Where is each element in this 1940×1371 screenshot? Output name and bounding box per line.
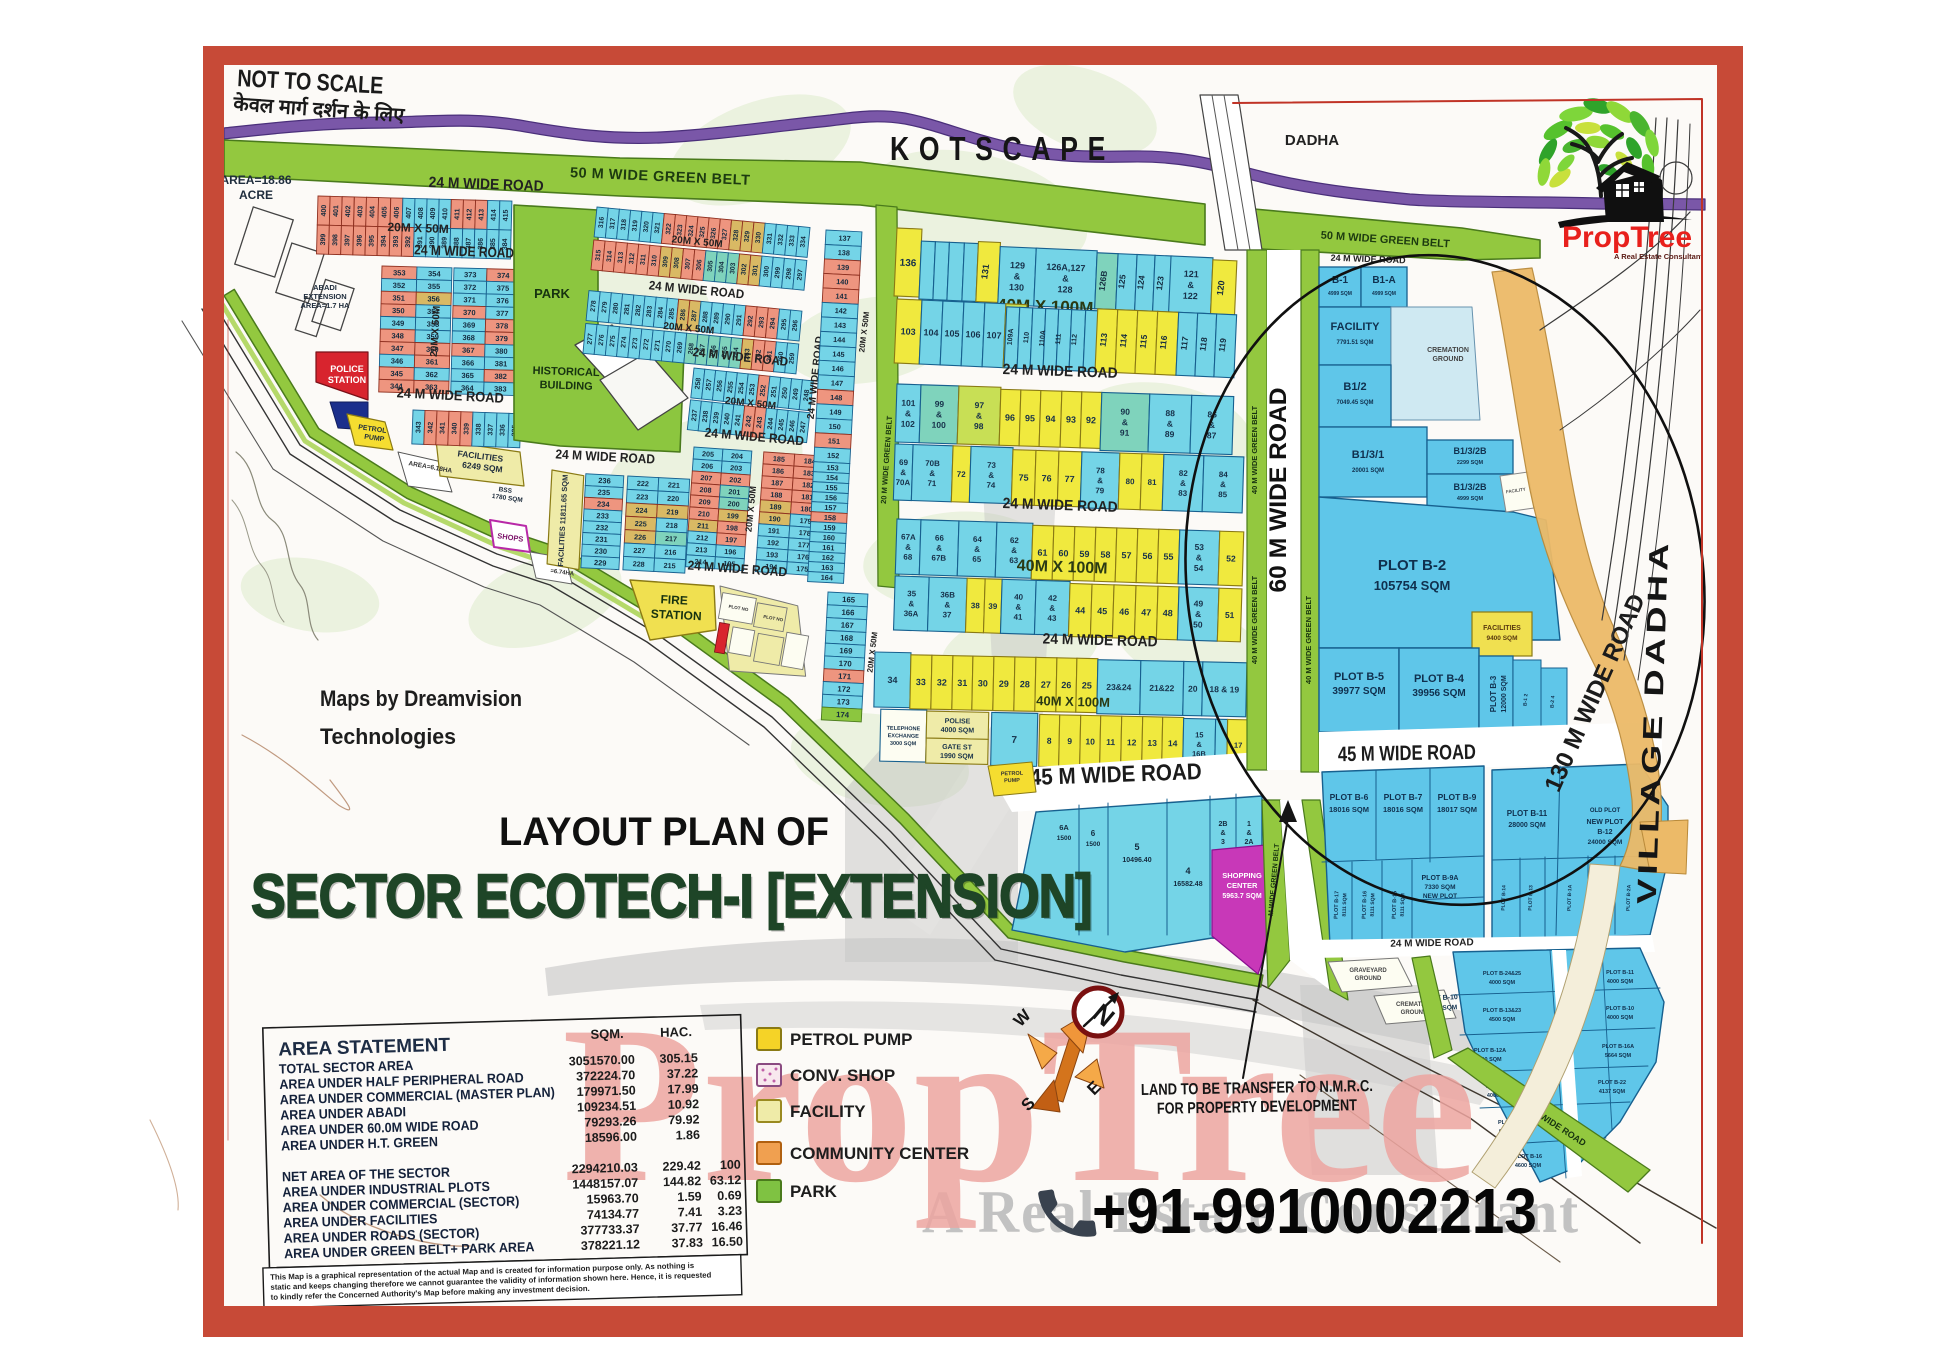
svg-text:36A: 36A — [904, 609, 919, 618]
svg-text:FACILITY: FACILITY — [790, 1102, 866, 1121]
svg-text:161: 161 — [822, 543, 835, 553]
svg-text:347: 347 — [391, 344, 404, 353]
svg-text:44: 44 — [1075, 605, 1085, 615]
svg-text:120: 120 — [1215, 280, 1227, 296]
svg-text:83: 83 — [1178, 489, 1188, 498]
svg-text:1.86: 1.86 — [675, 1128, 700, 1143]
svg-text:18016 SQM: 18016 SQM — [1383, 805, 1423, 814]
svg-text:SHOPPING: SHOPPING — [1222, 871, 1262, 880]
svg-text:PLOT B-14: PLOT B-14 — [1501, 885, 1508, 911]
svg-text:PLOT B-1A: PLOT B-1A — [1567, 884, 1574, 911]
svg-text:&: & — [974, 545, 980, 554]
svg-text:4999 SQM: 4999 SQM — [1457, 496, 1484, 502]
svg-text:14: 14 — [1168, 738, 1178, 748]
svg-text:40 M WIDE GREEN BELT: 40 M WIDE GREEN BELT — [1304, 595, 1313, 684]
svg-text:160: 160 — [823, 533, 836, 543]
svg-text:106: 106 — [965, 329, 980, 340]
svg-text:119: 119 — [1216, 337, 1228, 352]
svg-text:229: 229 — [594, 558, 607, 568]
svg-text:171: 171 — [838, 672, 852, 682]
svg-text:299: 299 — [774, 266, 782, 278]
svg-text:20001 SQM: 20001 SQM — [1352, 468, 1384, 474]
svg-text:4000 SQM: 4000 SQM — [1489, 980, 1516, 986]
svg-text:188: 188 — [770, 490, 783, 500]
svg-text:208: 208 — [699, 485, 712, 495]
svg-text:18017 SQM: 18017 SQM — [1437, 805, 1477, 814]
svg-text:FIRE: FIRE — [660, 592, 688, 607]
svg-text:2299 SQM: 2299 SQM — [1457, 460, 1484, 466]
svg-text:412: 412 — [466, 208, 473, 220]
svg-text:10: 10 — [1085, 736, 1095, 746]
svg-text:57: 57 — [1121, 550, 1131, 560]
svg-text:70A: 70A — [895, 478, 910, 487]
svg-text:LAYOUT PLAN OF: LAYOUT PLAN OF — [499, 810, 829, 854]
svg-text:355: 355 — [428, 282, 441, 291]
svg-text:247: 247 — [799, 421, 807, 433]
svg-text:PLOT B-13&23: PLOT B-13&23 — [1483, 1008, 1521, 1014]
svg-text:309: 309 — [662, 256, 670, 268]
svg-text:193: 193 — [766, 550, 779, 560]
svg-text:223: 223 — [636, 492, 648, 502]
svg-text:1500: 1500 — [1086, 841, 1101, 848]
svg-text:38: 38 — [971, 601, 981, 610]
svg-text:13: 13 — [1147, 738, 1157, 748]
svg-text:152: 152 — [827, 451, 840, 461]
svg-text:84: 84 — [1219, 470, 1229, 479]
svg-text:203: 203 — [730, 463, 743, 473]
svg-text:310: 310 — [651, 255, 659, 267]
svg-text:PLOT B-24&25: PLOT B-24&25 — [1483, 971, 1521, 977]
svg-text:233: 233 — [596, 511, 609, 521]
svg-text:27: 27 — [1041, 680, 1051, 690]
svg-text:333: 333 — [788, 235, 796, 247]
svg-text:4999 SQM: 4999 SQM — [1328, 291, 1352, 297]
svg-text:202: 202 — [729, 475, 742, 485]
svg-text:64: 64 — [973, 535, 983, 544]
svg-text:95: 95 — [1025, 413, 1035, 423]
svg-text:329: 329 — [744, 230, 752, 242]
svg-text:315: 315 — [595, 249, 603, 261]
svg-text:9400 SQM: 9400 SQM — [1486, 635, 1517, 642]
svg-text:4000 SQM: 4000 SQM — [941, 727, 975, 735]
svg-text:PLOT B-9: PLOT B-9 — [1438, 792, 1477, 802]
svg-text:238: 238 — [702, 410, 710, 422]
svg-text:275: 275 — [609, 335, 617, 347]
svg-text:177: 177 — [798, 540, 811, 550]
svg-text:228: 228 — [632, 559, 644, 569]
svg-text:KOTSCAPE: KOTSCAPE — [890, 130, 1115, 167]
svg-text:98: 98 — [974, 421, 984, 431]
svg-text:348: 348 — [391, 331, 404, 340]
svg-text:40M X 100M: 40M X 100M — [1017, 557, 1108, 577]
svg-text:ABADI: ABADI — [313, 283, 337, 292]
svg-text:150: 150 — [828, 422, 841, 432]
svg-text:B1/3/2B: B1/3/2B — [1453, 446, 1487, 456]
svg-text:362: 362 — [425, 370, 438, 379]
svg-text:PLOT B-7: PLOT B-7 — [1384, 792, 1423, 802]
svg-text:104: 104 — [923, 327, 938, 338]
svg-text:PETROL PUMP: PETROL PUMP — [790, 1030, 912, 1049]
svg-text:154: 154 — [826, 473, 840, 483]
svg-text:&: & — [1011, 546, 1017, 555]
svg-text:319: 319 — [631, 220, 639, 232]
svg-text:40 M WIDE GREEN BELT: 40 M WIDE GREEN BELT — [1250, 405, 1259, 494]
svg-text:65: 65 — [972, 555, 982, 564]
svg-text:20: 20 — [1188, 684, 1198, 694]
svg-text:102: 102 — [901, 419, 916, 429]
svg-text:34: 34 — [887, 675, 897, 685]
svg-text:279: 279 — [601, 301, 609, 313]
svg-text:63.12: 63.12 — [710, 1173, 742, 1188]
svg-text:&: & — [1167, 418, 1173, 428]
svg-text:297: 297 — [796, 269, 804, 281]
svg-text:52: 52 — [1226, 553, 1236, 563]
svg-text:70B: 70B — [925, 459, 940, 468]
svg-text:295: 295 — [780, 318, 788, 330]
svg-text:276: 276 — [598, 334, 606, 346]
svg-text:56: 56 — [1142, 551, 1152, 561]
svg-text:51: 51 — [1225, 610, 1235, 620]
svg-text:15963.70: 15963.70 — [586, 1191, 639, 1206]
svg-text:12000 SQM: 12000 SQM — [1501, 675, 1508, 713]
svg-text:241: 241 — [734, 414, 742, 426]
svg-text:&: & — [976, 410, 982, 420]
svg-text:8: 8 — [1047, 736, 1052, 746]
svg-text:66: 66 — [935, 534, 945, 543]
svg-text:PLOT B-10: PLOT B-10 — [1606, 1006, 1634, 1012]
svg-text:HISTORICAL: HISTORICAL — [532, 365, 600, 379]
svg-text:40 M WIDE GREEN BELT: 40 M WIDE GREEN BELT — [1250, 575, 1259, 664]
svg-text:&: & — [1246, 830, 1251, 837]
svg-text:172: 172 — [837, 684, 851, 694]
svg-text:201: 201 — [728, 487, 741, 497]
svg-text:396: 396 — [356, 235, 363, 247]
svg-text:307: 307 — [684, 258, 692, 270]
svg-text:PLOT B-17: PLOT B-17 — [1334, 891, 1341, 919]
svg-text:46: 46 — [1119, 607, 1129, 617]
svg-text:174: 174 — [836, 710, 850, 720]
svg-text:209: 209 — [698, 497, 711, 507]
svg-text:136: 136 — [899, 258, 917, 270]
svg-text:245: 245 — [778, 419, 786, 431]
svg-text:&: & — [1196, 740, 1202, 749]
svg-text:31: 31 — [957, 678, 967, 688]
svg-text:AREA=18.86: AREA=18.86 — [220, 173, 291, 187]
svg-text:219: 219 — [666, 507, 678, 517]
svg-text:303: 303 — [729, 262, 737, 274]
svg-text:411: 411 — [454, 208, 461, 220]
svg-text:361: 361 — [426, 357, 439, 366]
svg-text:234: 234 — [597, 499, 611, 509]
svg-text:131: 131 — [979, 264, 991, 280]
svg-text:62: 62 — [1010, 536, 1020, 545]
svg-text:28000 SQM: 28000 SQM — [1508, 822, 1546, 829]
svg-text:400: 400 — [321, 205, 328, 217]
svg-text:+91-9910002213: +91-9910002213 — [1092, 1175, 1537, 1247]
svg-text:229.42: 229.42 — [662, 1159, 701, 1174]
svg-text:217: 217 — [665, 534, 677, 544]
svg-text:&: & — [1122, 417, 1128, 427]
svg-text:60: 60 — [1058, 548, 1068, 558]
svg-text:218: 218 — [666, 521, 678, 531]
svg-text:167: 167 — [841, 621, 854, 631]
svg-text:&: & — [1196, 552, 1202, 562]
svg-text:286: 286 — [679, 309, 687, 321]
svg-text:314: 314 — [606, 250, 614, 262]
svg-text:144: 144 — [833, 335, 847, 345]
svg-text:24 M WIDE ROAD: 24 M WIDE ROAD — [1390, 937, 1474, 949]
svg-text:395: 395 — [368, 235, 375, 247]
svg-text:313: 313 — [617, 251, 625, 263]
svg-text:SECTOR ECOTECH-I [EXTENSION]: SECTOR ECOTECH-I [EXTENSION] — [251, 862, 1092, 931]
svg-text:&: & — [1220, 480, 1226, 489]
svg-text:STATION: STATION — [328, 375, 366, 385]
svg-text:18016 SQM: 18016 SQM — [1329, 805, 1369, 814]
svg-text:305: 305 — [707, 260, 715, 272]
svg-text:11: 11 — [1106, 737, 1115, 747]
svg-text:74134.77: 74134.77 — [587, 1207, 640, 1222]
svg-text:PLOT B-11: PLOT B-11 — [1606, 970, 1634, 976]
svg-text:&: & — [936, 544, 942, 553]
svg-text:365: 365 — [461, 371, 474, 380]
svg-text:COMMUNITY CENTER: COMMUNITY CENTER — [790, 1144, 969, 1163]
svg-text:298: 298 — [785, 268, 793, 280]
svg-text:292: 292 — [747, 315, 755, 327]
svg-text:351: 351 — [392, 293, 405, 302]
svg-text:STATION: STATION — [650, 607, 702, 624]
svg-text:8111 SQM: 8111 SQM — [1342, 893, 1349, 917]
svg-text:6A: 6A — [1059, 823, 1069, 832]
svg-text:PLOT B-9A: PLOT B-9A — [1422, 875, 1459, 882]
svg-text:317: 317 — [609, 217, 617, 229]
svg-text:FACILITIES: FACILITIES — [1483, 625, 1521, 632]
svg-text:235: 235 — [597, 488, 610, 498]
svg-text:PLOT B-13: PLOT B-13 — [1528, 885, 1535, 911]
svg-text:231: 231 — [595, 535, 608, 545]
svg-text:5: 5 — [1134, 842, 1139, 852]
svg-text:&: & — [1195, 609, 1201, 619]
svg-text:257: 257 — [705, 378, 713, 390]
svg-text:59: 59 — [1079, 549, 1089, 559]
svg-text:FACILITY: FACILITY — [1331, 321, 1381, 333]
svg-text:B-1 2: B-1 2 — [1522, 693, 1529, 706]
svg-text:82: 82 — [1179, 469, 1189, 478]
svg-text:312: 312 — [628, 252, 636, 264]
svg-text:170: 170 — [839, 659, 853, 669]
svg-text:334: 334 — [800, 236, 808, 248]
svg-text:DADHA: DADHA — [1285, 132, 1339, 149]
svg-text:EXCHANGE: EXCHANGE — [888, 733, 920, 740]
svg-text:117: 117 — [1178, 336, 1190, 351]
svg-text:372: 372 — [464, 283, 477, 292]
svg-text:413: 413 — [478, 209, 485, 221]
svg-text:337: 337 — [487, 424, 494, 436]
svg-text:50: 50 — [1193, 619, 1203, 629]
svg-text:196: 196 — [724, 547, 737, 557]
svg-text:141: 141 — [835, 291, 848, 301]
svg-text:377733.37: 377733.37 — [580, 1222, 640, 1238]
svg-text:398: 398 — [332, 234, 339, 246]
svg-text:76: 76 — [1041, 473, 1051, 483]
svg-text:243: 243 — [756, 416, 764, 428]
svg-text:PropTree: PropTree — [1562, 221, 1692, 254]
svg-text:2B: 2B — [1219, 821, 1228, 828]
svg-text:284: 284 — [657, 306, 665, 318]
svg-text:99: 99 — [935, 399, 945, 409]
svg-text:328: 328 — [732, 229, 740, 241]
svg-text:322: 322 — [665, 223, 673, 235]
svg-text:162: 162 — [822, 553, 835, 563]
svg-text:403: 403 — [357, 206, 364, 218]
svg-text:107: 107 — [986, 330, 1001, 341]
svg-text:179: 179 — [799, 516, 812, 526]
svg-text:311: 311 — [640, 254, 648, 266]
svg-text:100: 100 — [720, 1158, 741, 1173]
svg-text:75: 75 — [1018, 472, 1028, 482]
svg-text:24 M WIDE ROAD: 24 M WIDE ROAD — [1042, 631, 1157, 651]
svg-text:7791.51 SQM: 7791.51 SQM — [1336, 340, 1373, 346]
svg-text:216: 216 — [664, 547, 676, 557]
svg-text:&: & — [905, 408, 911, 418]
svg-text:PUMP: PUMP — [1004, 778, 1020, 785]
svg-text:343: 343 — [415, 421, 422, 433]
svg-text:110: 110 — [1023, 332, 1031, 344]
svg-text:12: 12 — [1127, 737, 1137, 747]
svg-text:37: 37 — [942, 610, 952, 619]
svg-text:18 & 19: 18 & 19 — [1209, 684, 1239, 695]
svg-text:81: 81 — [1147, 478, 1157, 487]
svg-text:140: 140 — [836, 277, 849, 287]
svg-text:FOR PROPERTY DEVELOPMENT: FOR PROPERTY DEVELOPMENT — [1157, 1097, 1357, 1117]
svg-text:35: 35 — [907, 589, 917, 598]
svg-text:369: 369 — [463, 320, 476, 329]
svg-text:16.50: 16.50 — [711, 1234, 743, 1249]
svg-text:5664 SQM: 5664 SQM — [1605, 1053, 1632, 1059]
svg-text:1: 1 — [1247, 821, 1251, 828]
svg-text:336: 336 — [499, 424, 506, 436]
svg-text:24000 SQM: 24000 SQM — [1588, 839, 1623, 846]
svg-text:393: 393 — [393, 236, 400, 248]
svg-text:330: 330 — [755, 231, 763, 243]
svg-text:164: 164 — [820, 573, 834, 583]
svg-text:68: 68 — [903, 553, 913, 562]
svg-text:236: 236 — [598, 476, 611, 486]
svg-text:37.22: 37.22 — [667, 1066, 699, 1081]
svg-text:367: 367 — [462, 346, 475, 355]
svg-text:74: 74 — [986, 481, 996, 490]
svg-text:401: 401 — [333, 205, 340, 217]
svg-text:178: 178 — [798, 528, 811, 538]
svg-text:273: 273 — [631, 337, 639, 349]
svg-text:290: 290 — [724, 313, 732, 325]
svg-text:&: & — [1015, 603, 1021, 612]
svg-text:232: 232 — [596, 523, 609, 533]
svg-text:163: 163 — [821, 563, 834, 573]
svg-text:TELEPHONE: TELEPHONE — [887, 726, 921, 733]
svg-text:342: 342 — [427, 422, 434, 434]
svg-text:78: 78 — [1096, 466, 1106, 475]
svg-text:350: 350 — [392, 306, 405, 315]
svg-text:B1/3/2B: B1/3/2B — [1453, 482, 1487, 492]
svg-text:397: 397 — [344, 234, 351, 246]
svg-text:225: 225 — [635, 519, 647, 529]
svg-text:240: 240 — [723, 413, 731, 425]
svg-text:73: 73 — [987, 461, 997, 470]
svg-text:130: 130 — [1009, 282, 1024, 293]
svg-text:305.15: 305.15 — [659, 1051, 698, 1066]
svg-text:32: 32 — [937, 677, 947, 687]
svg-text:221: 221 — [668, 480, 680, 490]
svg-text:151: 151 — [828, 436, 841, 446]
svg-text:PLOT B-4: PLOT B-4 — [1414, 673, 1465, 685]
svg-text:338: 338 — [475, 423, 482, 435]
svg-text:109234.51: 109234.51 — [577, 1099, 637, 1115]
svg-text:204: 204 — [731, 451, 744, 461]
svg-text:269: 269 — [676, 341, 684, 353]
svg-text:281: 281 — [623, 303, 631, 315]
svg-text:147: 147 — [831, 378, 844, 388]
svg-text:306: 306 — [696, 259, 704, 271]
svg-text:47: 47 — [1141, 607, 1151, 617]
svg-text:291: 291 — [735, 314, 743, 326]
svg-text:199: 199 — [726, 511, 739, 521]
svg-text:Technologies: Technologies — [320, 724, 456, 749]
svg-text:10.92: 10.92 — [668, 1097, 700, 1112]
svg-text:230: 230 — [594, 546, 607, 556]
svg-text:408: 408 — [418, 207, 425, 219]
svg-text:1500: 1500 — [1057, 835, 1072, 842]
svg-text:4000 SQM: 4000 SQM — [1607, 979, 1634, 985]
svg-text:143: 143 — [834, 320, 847, 330]
svg-text:399: 399 — [320, 234, 327, 246]
svg-text:&: & — [1049, 604, 1055, 613]
svg-text:7.41: 7.41 — [678, 1205, 703, 1220]
svg-text:124: 124 — [1135, 274, 1147, 290]
svg-text:93: 93 — [1066, 414, 1076, 424]
svg-text:0.69: 0.69 — [717, 1188, 742, 1203]
svg-text:97: 97 — [974, 400, 984, 410]
svg-text:318: 318 — [620, 218, 628, 230]
svg-text:198: 198 — [726, 523, 739, 533]
svg-text:146: 146 — [831, 364, 844, 374]
svg-text:175: 175 — [796, 564, 809, 574]
svg-text:197: 197 — [725, 535, 738, 545]
svg-text:301: 301 — [752, 264, 760, 276]
svg-text:346: 346 — [391, 356, 404, 365]
svg-text:92: 92 — [1086, 415, 1096, 425]
svg-text:302: 302 — [740, 263, 748, 275]
svg-text:9: 9 — [1067, 736, 1072, 746]
svg-text:371: 371 — [463, 295, 476, 304]
svg-text:287: 287 — [691, 310, 699, 322]
svg-text:40: 40 — [1014, 593, 1024, 602]
svg-text:405: 405 — [381, 206, 388, 218]
svg-text:72: 72 — [957, 470, 967, 479]
svg-text:79293.26: 79293.26 — [584, 1114, 637, 1129]
svg-text:242: 242 — [745, 415, 753, 427]
svg-text:PLOT B-16: PLOT B-16 — [1362, 891, 1369, 919]
svg-text:GRAVEYARD: GRAVEYARD — [1349, 968, 1387, 974]
svg-text:&: & — [1180, 479, 1186, 488]
svg-text:10496.40: 10496.40 — [1122, 857, 1151, 864]
svg-text:45 M WIDE ROAD: 45 M WIDE ROAD — [1338, 741, 1476, 766]
svg-text:60 M WIDE ROAD: 60 M WIDE ROAD — [1265, 388, 1292, 593]
svg-text:332: 332 — [777, 234, 785, 246]
svg-text:341: 341 — [439, 422, 446, 434]
svg-text:345: 345 — [390, 369, 403, 378]
svg-text:139: 139 — [837, 263, 850, 273]
svg-text:1448157.07: 1448157.07 — [572, 1176, 638, 1192]
